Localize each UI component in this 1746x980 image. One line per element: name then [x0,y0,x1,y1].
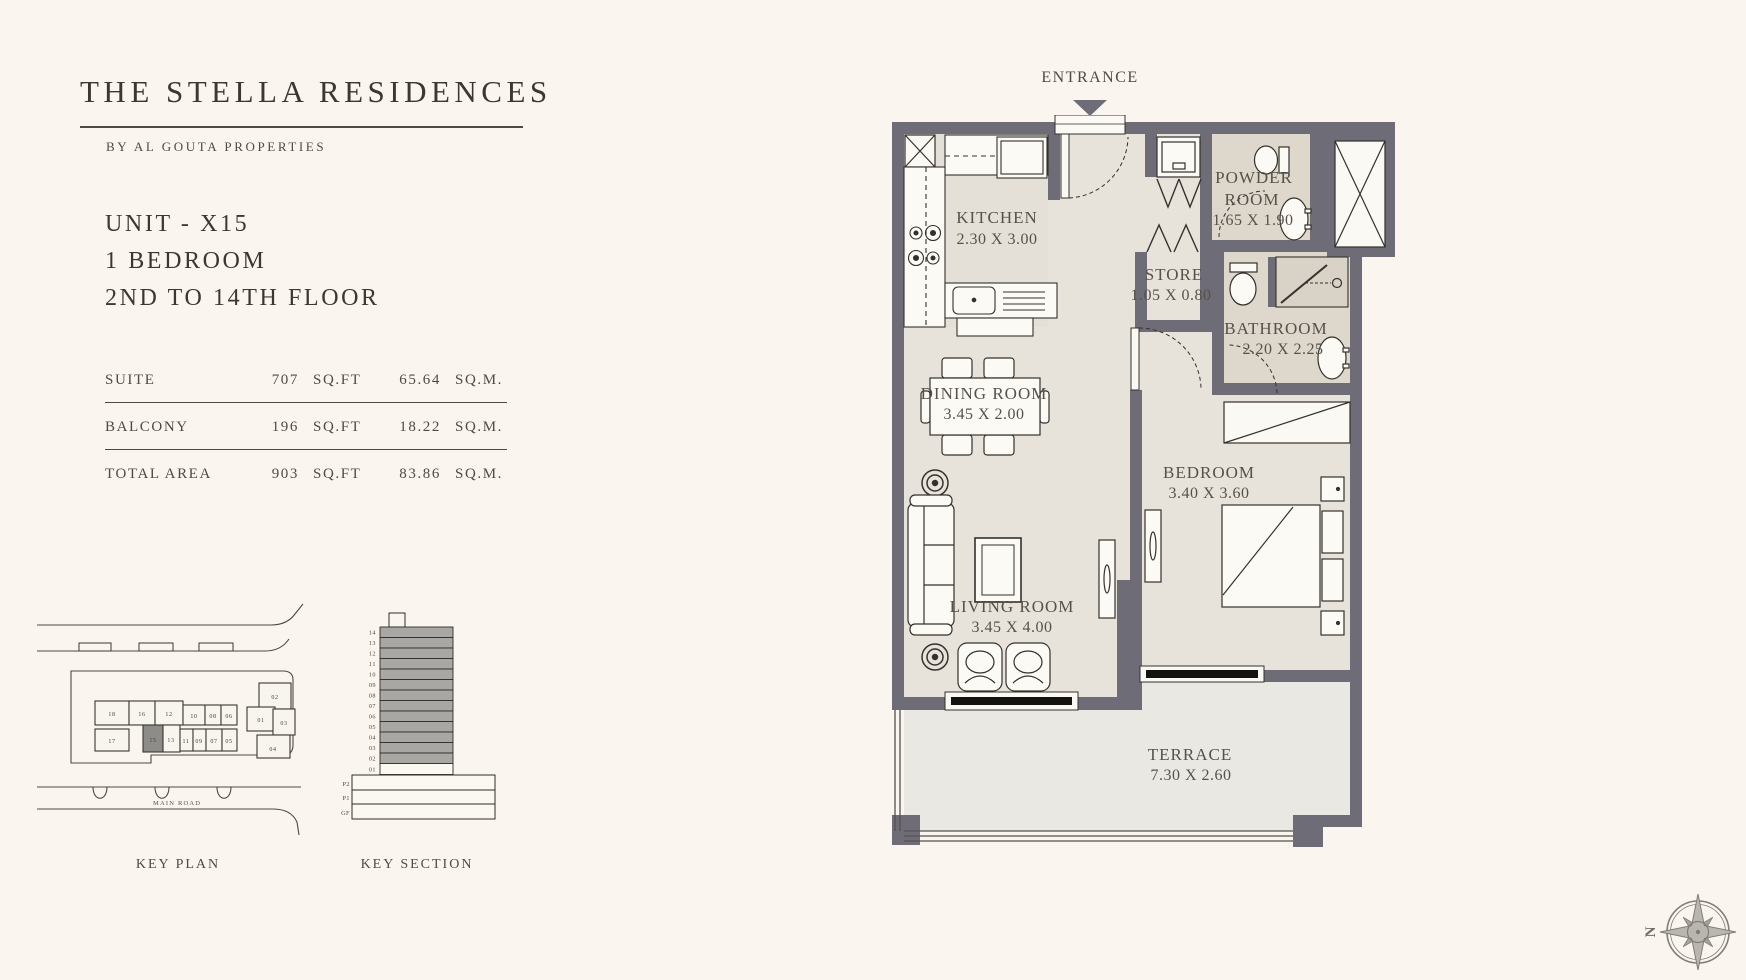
title-divider [80,126,523,128]
svg-text:13: 13 [369,640,376,647]
bedroom-dims: 3.40 X 3.60 [1168,485,1249,503]
svg-text:09: 09 [369,682,376,689]
svg-text:03: 03 [280,721,287,727]
svg-text:01: 01 [369,767,376,774]
svg-text:04: 04 [269,747,276,753]
wardrobe-icon [1224,402,1350,443]
svg-text:17: 17 [108,739,115,745]
svg-text:03: 03 [369,745,376,752]
svg-text:P1: P1 [342,795,350,802]
key-section-diagram: 14 13 12 11 10 09 08 07 06 05 04 03 02 0… [340,600,500,830]
sqft-value: 196 [241,419,299,436]
unit-info: UNIT - X15 1 BEDROOM 2ND TO 14TH FLOOR [105,206,380,317]
bathroom-toilet-icon [1230,263,1257,305]
powder-room-label: POWDER [1215,168,1293,188]
elevator-icon [1335,141,1385,247]
svg-text:07: 07 [369,703,376,710]
svg-text:P2: P2 [342,781,350,788]
svg-text:02: 02 [369,756,376,763]
svg-text:12: 12 [165,712,172,718]
store-dims: 1.05 X 0.80 [1130,287,1211,305]
dining-room-dims: 3.45 X 2.00 [943,406,1024,424]
washer-icon [1157,137,1200,177]
coffee-table-icon [975,538,1021,602]
unit-number: UNIT - X15 [105,206,380,243]
svg-text:GF: GF [341,810,350,817]
row-label: SUITE [105,372,241,389]
page-subtitle: BY AL GOUTA PROPERTIES [106,139,326,155]
svg-text:18: 18 [108,712,115,718]
sqm-unit: SQ.M. [441,372,507,389]
table-row: TOTAL AREA 903 SQ.FT 83.86 SQ.M. [105,450,507,496]
sqm-value: 83.86 [385,466,441,483]
store-label: STORE [1145,265,1204,285]
entrance-arrow-icon [1073,100,1107,116]
svg-text:11: 11 [369,661,376,668]
sqm-value: 18.22 [385,419,441,436]
row-label: BALCONY [105,419,241,436]
compass-icon: N [1636,875,1746,980]
sqft-unit: SQ.FT [299,372,385,389]
bedroom-label: BEDROOM [1163,463,1255,483]
terrace-dims: 7.30 X 2.60 [1150,767,1231,785]
page-title: THE STELLA RESIDENCES [80,74,552,110]
svg-text:05: 05 [369,724,376,731]
svg-text:06: 06 [369,714,376,721]
unit-floors: 2ND TO 14TH FLOOR [105,280,380,317]
svg-text:09: 09 [195,739,202,745]
living-room-dims: 3.45 X 4.00 [971,619,1052,637]
svg-text:15: 15 [149,738,156,744]
bathroom-dims: 2.20 X 2.25 [1242,341,1323,359]
svg-text:12: 12 [369,651,376,658]
kitchen-label: KITCHEN [956,208,1038,228]
shaft-icon [905,135,935,167]
dining-room-label: DINING ROOM [921,384,1048,404]
key-plan-diagram: 18 16 12 10 08 06 17 15 13 11 09 07 05 0… [35,595,335,835]
svg-text:06: 06 [225,714,232,720]
table-row: SUITE 707 SQ.FT 65.64 SQ.M. [105,356,507,403]
svg-text:13: 13 [167,738,174,744]
sqm-value: 65.64 [385,372,441,389]
key-section-podium [352,775,495,819]
svg-text:08: 08 [209,714,216,720]
svg-text:14: 14 [369,630,376,637]
svg-text:07: 07 [210,739,217,745]
entrance-label: ENTRANCE [1041,69,1138,87]
powder-room-label: ROOM [1224,190,1279,210]
svg-text:11: 11 [183,739,190,745]
sqft-unit: SQ.FT [299,419,385,436]
terrace-label: TERRACE [1148,745,1232,765]
dresser-icon [1145,510,1161,582]
svg-text:01: 01 [257,718,264,724]
compass-north-label: N [1643,926,1659,937]
kitchen-dims: 2.30 X 3.00 [956,231,1037,249]
svg-text:10: 10 [369,672,376,679]
svg-text:08: 08 [369,693,376,700]
sqft-unit: SQ.FT [299,466,385,483]
svg-text:16: 16 [138,712,145,718]
tv-console-icon [1099,540,1115,618]
key-section-tower-floors [380,627,453,775]
sqft-value: 707 [241,372,299,389]
living-room-label: LIVING ROOM [950,597,1075,617]
sqm-unit: SQ.M. [441,419,507,436]
key-section-roof-box [389,613,405,627]
table-row: BALCONY 196 SQ.FT 18.22 SQ.M. [105,403,507,450]
key-section-podium-labels: P2 P1 GF [341,781,350,817]
unit-type: 1 BEDROOM [105,243,380,280]
main-road-label: MAIN ROAD [153,800,201,807]
sofa-icon [908,495,954,635]
fridge-icon [997,137,1047,178]
key-plan-building-units [95,683,295,758]
sqm-unit: SQ.M. [441,466,507,483]
area-table: SUITE 707 SQ.FT 65.64 SQ.M. BALCONY 196 … [105,356,507,496]
key-section-floor-labels: 14 13 12 11 10 09 08 07 06 05 04 03 02 0… [369,630,376,774]
bathroom-label: BATHROOM [1224,319,1327,339]
key-section-caption: KEY SECTION [361,857,474,873]
sqft-value: 903 [241,466,299,483]
svg-text:05: 05 [225,739,232,745]
powder-room-dims: 1.65 X 1.90 [1212,212,1293,230]
floorplan-brochure-page: THE STELLA RESIDENCES BY AL GOUTA PROPER… [0,0,1746,980]
shower-icon [1276,257,1348,307]
svg-text:04: 04 [369,735,376,742]
row-label: TOTAL AREA [105,466,241,483]
key-plan-caption: KEY PLAN [136,857,220,873]
svg-text:02: 02 [271,695,278,701]
svg-text:10: 10 [190,714,197,720]
